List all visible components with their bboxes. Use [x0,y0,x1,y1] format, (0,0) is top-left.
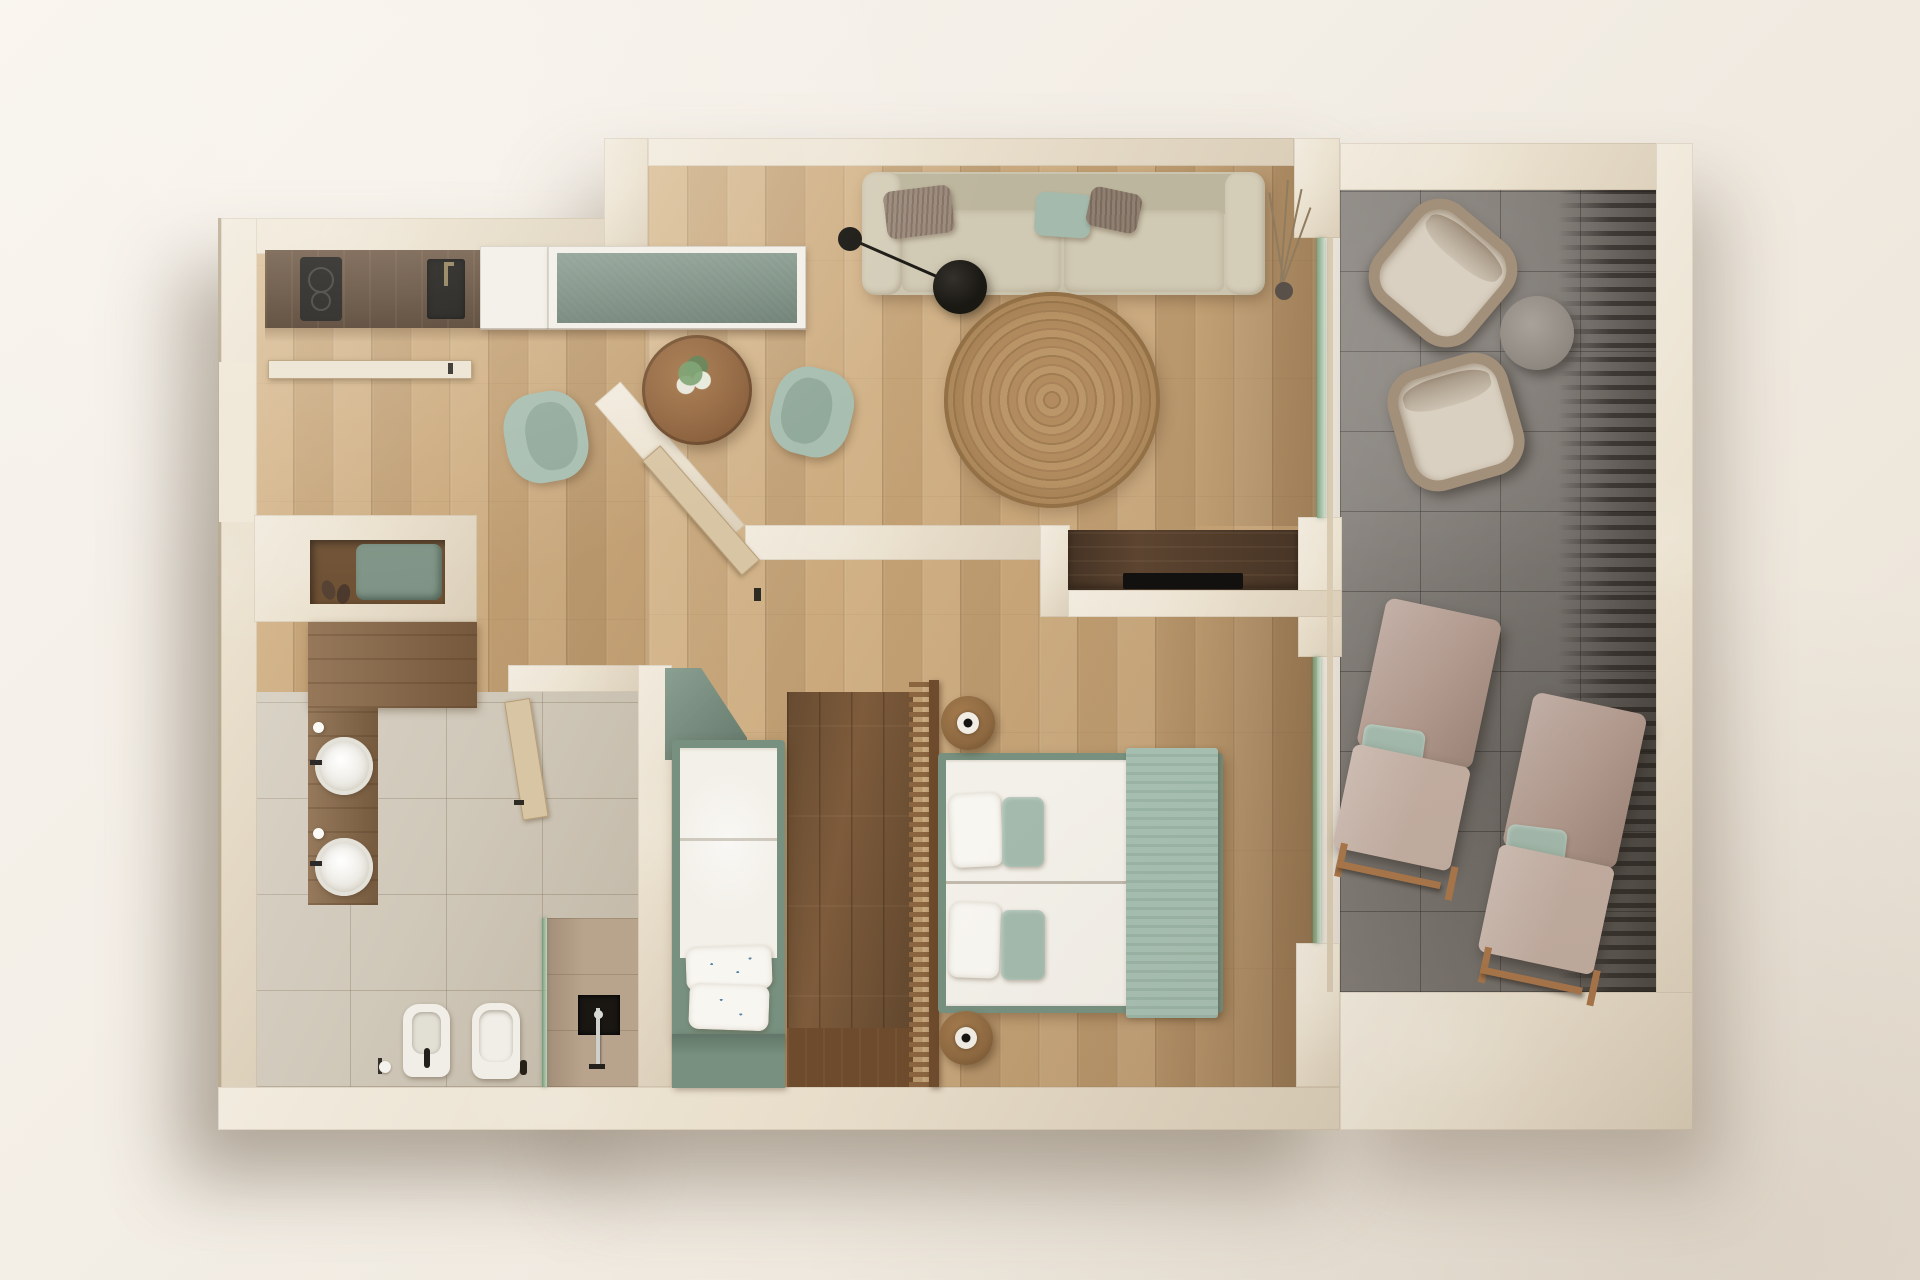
kitchen-faucet-spout [444,262,454,266]
floor-plan-scene [0,0,1920,1280]
terrace-side-table [1500,296,1574,370]
lamp-south [955,1027,977,1049]
bed-throw [1126,748,1218,1018]
bench-cushion [356,544,442,600]
wall-top-terrace [1340,143,1693,190]
bed-pillow-white-1 [948,792,1004,869]
single-bed-mattress [680,748,777,958]
shower-mixer [589,1064,605,1069]
sink-south [315,838,373,896]
flower-centerpiece [672,355,718,401]
sink-south-faucet [310,861,322,866]
wall-top-living [648,138,1294,166]
wall-pillar-terrace-mid [1298,517,1342,657]
wall-bottom [218,1087,1340,1130]
wall-bedroom-jog [1040,525,1070,617]
cooktop [300,257,342,321]
single-bed-fold-line [680,838,777,841]
wall-left [218,218,257,1130]
wall-bedroom-north-b [1068,590,1342,617]
tp-roll [379,1061,391,1073]
tv [1123,573,1243,589]
wardrobe-block [308,622,477,708]
glass-door-living-terrace [1317,238,1325,518]
dining-chair-west-seat [521,398,583,474]
glass-door-bedroom-terrace [1313,657,1321,943]
wall-hall [508,665,647,692]
wall-bottom-terrace [1340,992,1693,1130]
shower-glass-screen [542,918,547,1087]
kitchen-cabinet-green [557,253,797,323]
bathroom-door-handle [514,800,524,805]
pocket-door-handle [754,588,761,601]
wall-pillar-terrace-south [1296,943,1340,1087]
entry-door-handle [448,363,453,374]
soap-dispenser-north [313,722,324,733]
bed-pillow-green-1 [1002,797,1044,867]
entry-door-recess [219,362,254,522]
jute-rug [944,292,1160,508]
bed-pillow-green-2 [1001,910,1045,980]
sofa-armrest-right [1225,172,1265,295]
slat-screen-teeth [909,680,931,1087]
lamp-north [957,712,979,734]
bidet-faucet [424,1048,430,1068]
kitchen-counter-shadow [265,328,806,342]
sink-north-faucet [310,760,322,765]
soap-dispenser-south [313,828,324,839]
shower-head [594,1010,603,1019]
wall-step [604,138,648,254]
sink-north [315,737,373,795]
single-bed-pillow-2 [688,983,770,1032]
sofa-pillow-taupe-left [882,184,955,240]
plant-vase [1275,282,1293,300]
wall-bedroom-north-a [745,525,1050,560]
toilet-brush [520,1060,527,1075]
sofa-pillow-green [1034,191,1093,239]
single-bed-footboard [672,1034,785,1088]
toilet-lid [479,1010,513,1062]
aisle-cabinet [787,1028,913,1087]
bed-pillow-white-2 [948,901,1002,979]
wall-right [1656,143,1693,1130]
dining-chair-east-seat [774,372,838,449]
entry-door [268,360,472,379]
floor-lamp-shade [933,260,987,314]
kitchen-cabinet-white [480,246,548,330]
